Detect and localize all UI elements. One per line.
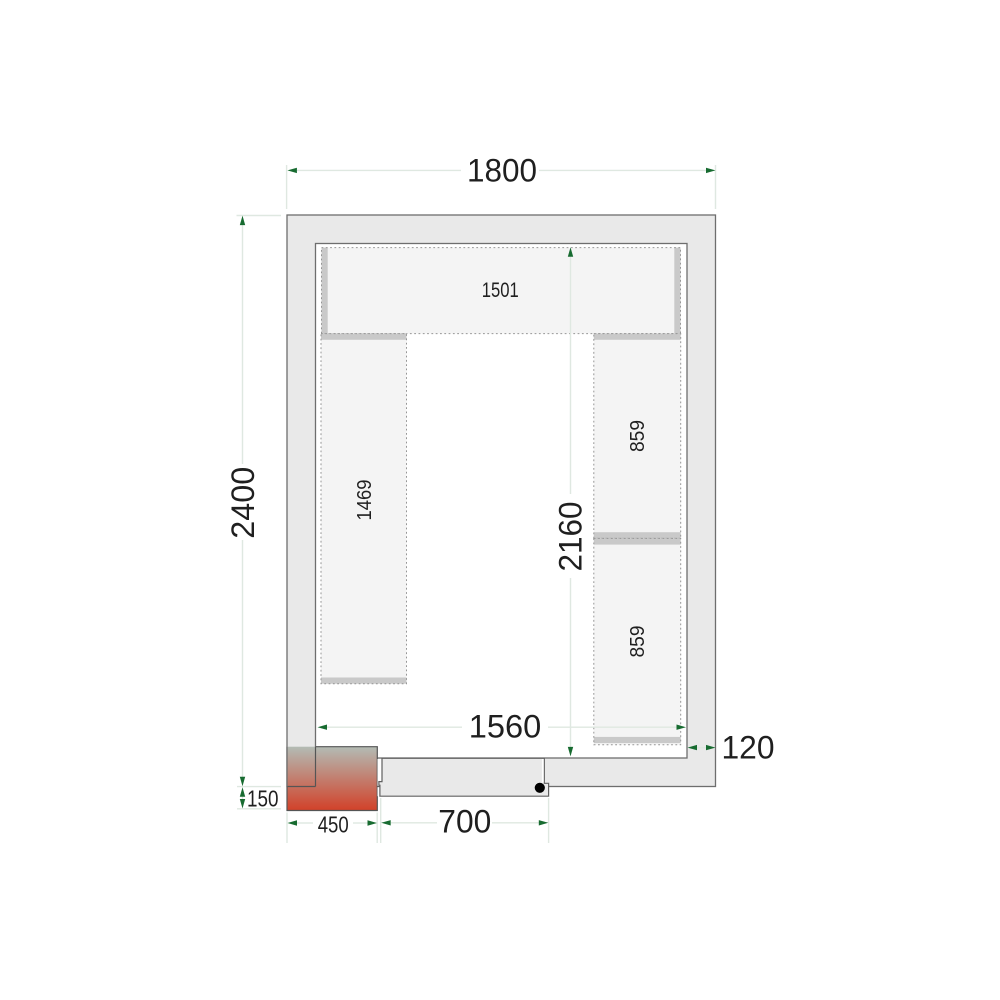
svg-text:1469: 1469 (354, 480, 376, 521)
svg-text:2160: 2160 (553, 502, 589, 572)
svg-text:150: 150 (247, 785, 279, 811)
svg-text:859: 859 (627, 626, 649, 658)
svg-text:700: 700 (438, 803, 491, 839)
svg-text:120: 120 (722, 730, 775, 766)
svg-text:1560: 1560 (469, 709, 542, 745)
svg-text:450: 450 (318, 812, 349, 838)
svg-text:2400: 2400 (225, 467, 261, 539)
svg-text:1501: 1501 (482, 279, 519, 302)
svg-text:859: 859 (627, 420, 649, 452)
svg-text:1800: 1800 (467, 153, 537, 189)
